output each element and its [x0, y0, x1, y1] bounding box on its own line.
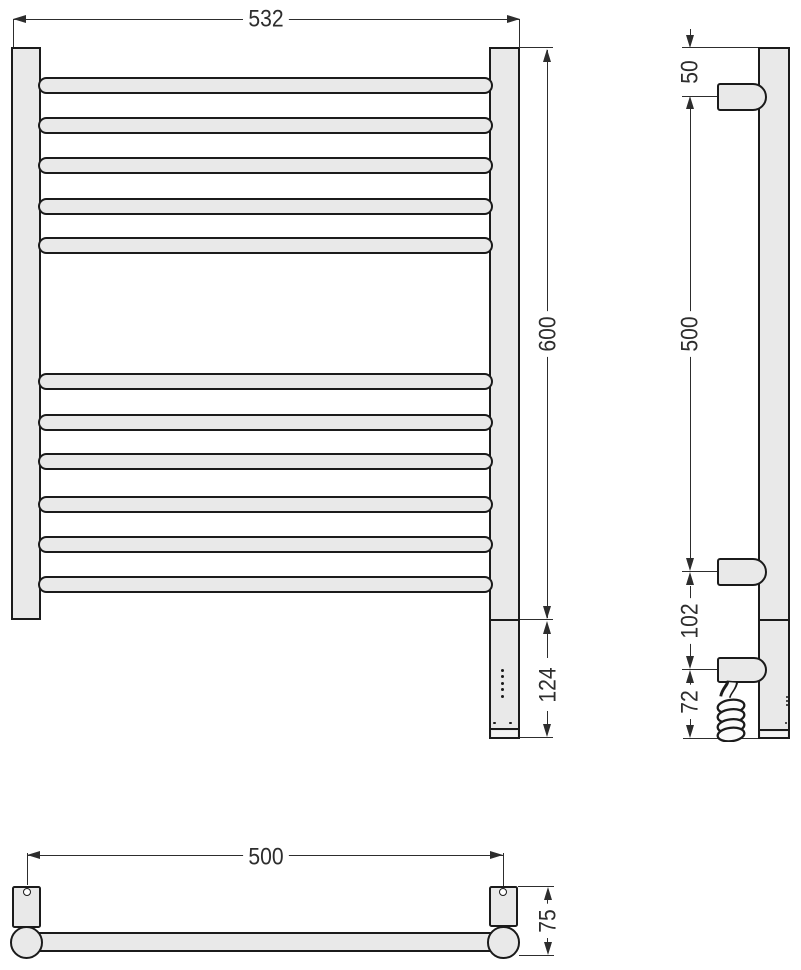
control-box-top-seam: [489, 619, 520, 621]
dim-line: [547, 50, 548, 312]
towel-bar: [38, 576, 493, 593]
extension-line: [519, 955, 555, 956]
screw-hole-left: [23, 888, 31, 896]
arrowhead-down-icon: [686, 558, 694, 571]
extension-line: [503, 853, 504, 886]
dim-label-width: 532: [243, 6, 289, 31]
arrowhead-down-icon: [543, 724, 551, 737]
front-left-upright: [11, 47, 41, 620]
dim-label-lower-section: 72: [678, 685, 703, 719]
arrowhead-up-icon: [544, 887, 552, 900]
arrowhead-left-icon: [13, 15, 26, 23]
led-indicator-icon: [501, 682, 504, 685]
plan-towel-bar: [30, 932, 500, 952]
dim-line: [547, 355, 548, 618]
front-right-upright: [489, 47, 520, 739]
dim-label-mid-section: 102: [678, 598, 703, 644]
towel-bar: [38, 198, 493, 215]
led-edge-tick: [786, 696, 788, 698]
towel-bar: [38, 536, 493, 553]
wall-bracket-middle: [717, 558, 767, 587]
arrowhead-up-icon: [686, 670, 694, 683]
dim-line: [690, 355, 691, 558]
extension-line: [13, 20, 14, 47]
dim-line: [288, 19, 520, 20]
led-indicator-icon: [501, 695, 504, 698]
dim-line: [690, 109, 691, 312]
side-control-top-seam: [758, 619, 791, 621]
extension-line: [27, 853, 28, 886]
wall-bracket-top: [717, 83, 767, 111]
dim-line: [547, 634, 548, 658]
extension-line: [682, 96, 717, 97]
led-edge-tick: [786, 704, 788, 706]
dim-label-bracket-span: 500: [678, 311, 703, 357]
towel-bar: [38, 453, 493, 470]
towel-bar: [38, 157, 493, 174]
arrowhead-down-icon: [544, 942, 552, 955]
arrowhead-up-icon: [686, 96, 694, 109]
dim-label-height: 600: [535, 311, 560, 357]
screw-dot: [509, 722, 512, 725]
bottom-cap: [492, 731, 517, 737]
extension-line: [519, 20, 520, 48]
led-indicator-icon: [501, 669, 504, 672]
dim-label-bottom-section: 124: [535, 662, 560, 708]
arrowhead-down-icon: [686, 656, 694, 669]
arrowhead-right-icon: [507, 15, 520, 23]
towel-bar: [38, 77, 493, 94]
dim-label-top-offset: 50: [678, 54, 703, 88]
dim-label-depth: 75: [535, 904, 560, 938]
extension-line: [518, 886, 555, 887]
dim-label-mount-span: 500: [243, 844, 289, 869]
dim-line: [547, 711, 548, 725]
extension-line: [682, 47, 758, 48]
towel-bar: [38, 414, 493, 431]
side-upright: [758, 47, 791, 739]
arrowhead-down-icon: [543, 606, 551, 619]
upright-section-left: [10, 926, 43, 959]
arrowhead-up-icon: [686, 572, 694, 585]
extension-line: [520, 47, 554, 48]
towel-bar: [38, 496, 493, 513]
towel-bar: [38, 373, 493, 390]
towel-bar: [38, 117, 493, 134]
arrowhead-right-icon: [490, 851, 503, 859]
dim-line: [13, 19, 243, 20]
dim-line: [27, 855, 244, 856]
side-bottom-cap: [761, 732, 788, 737]
upright-section-right: [487, 926, 520, 959]
led-indicator-icon: [501, 688, 504, 691]
power-cable-coil-icon: [711, 677, 752, 742]
extension-line: [520, 737, 553, 738]
towel-bar: [38, 237, 493, 254]
led-indicator-icon: [501, 675, 504, 678]
arrowhead-down-icon: [686, 725, 694, 738]
arrowhead-left-icon: [27, 851, 40, 859]
arrowhead-up-icon: [543, 621, 551, 634]
led-edge-tick: [786, 700, 788, 702]
arrowhead-up-icon: [543, 49, 551, 62]
dim-line: [287, 855, 503, 856]
drawing-canvas: 532 600 124: [0, 0, 801, 970]
screw-dot: [493, 722, 496, 725]
